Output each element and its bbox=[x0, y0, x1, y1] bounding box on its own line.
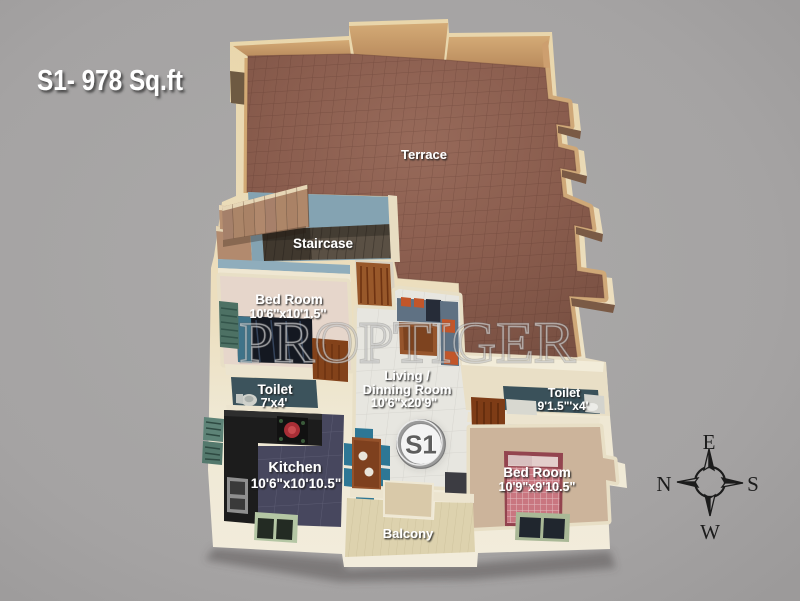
svg-text:7'x4': 7'x4' bbox=[261, 396, 288, 410]
svg-text:Living /: Living / bbox=[384, 368, 430, 383]
svg-text:E: E bbox=[703, 430, 716, 454]
svg-text:S1- 978 Sq.ft: S1- 978 Sq.ft bbox=[37, 65, 183, 97]
svg-text:Toilet: Toilet bbox=[258, 382, 294, 397]
svg-text:Balcony: Balcony bbox=[383, 526, 434, 541]
svg-text:W: W bbox=[700, 520, 720, 544]
svg-text:Staircase: Staircase bbox=[293, 236, 354, 251]
svg-text:Terrace: Terrace bbox=[401, 147, 447, 162]
svg-text:10'9"x9'10.5": 10'9"x9'10.5" bbox=[499, 480, 576, 494]
svg-text:N: N bbox=[656, 472, 671, 496]
svg-text:9'1.5"'x4': 9'1.5"'x4' bbox=[538, 399, 589, 413]
svg-text:Kitchen: Kitchen bbox=[268, 460, 321, 476]
svg-text:Toilet: Toilet bbox=[548, 386, 581, 400]
svg-text:Bed Room: Bed Room bbox=[255, 292, 323, 307]
svg-text:Dinning Room: Dinning Room bbox=[363, 382, 452, 397]
svg-text:S1: S1 bbox=[405, 430, 437, 460]
svg-text:Bed Room: Bed Room bbox=[503, 465, 571, 480]
svg-text:10'6''x10'1.5'': 10'6''x10'1.5'' bbox=[250, 307, 327, 321]
svg-text:10'6"x10'10.5": 10'6"x10'10.5" bbox=[251, 476, 342, 491]
svg-text:10'6"x20'9": 10'6"x20'9" bbox=[371, 396, 438, 410]
svg-text:S: S bbox=[747, 472, 759, 496]
